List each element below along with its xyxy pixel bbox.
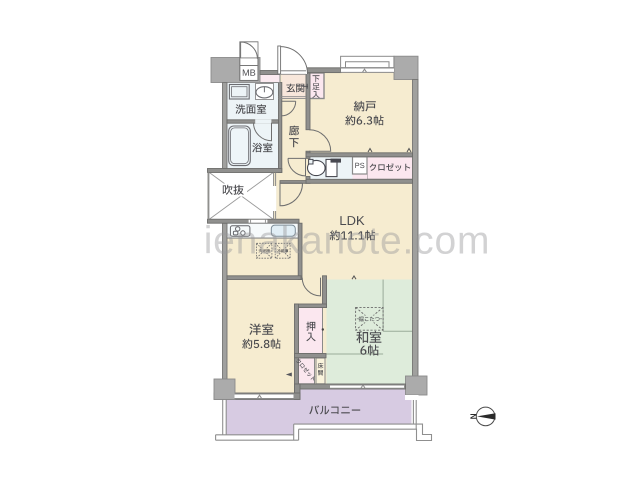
svg-text:ienakanote.com: ienakanote.com (204, 220, 491, 263)
